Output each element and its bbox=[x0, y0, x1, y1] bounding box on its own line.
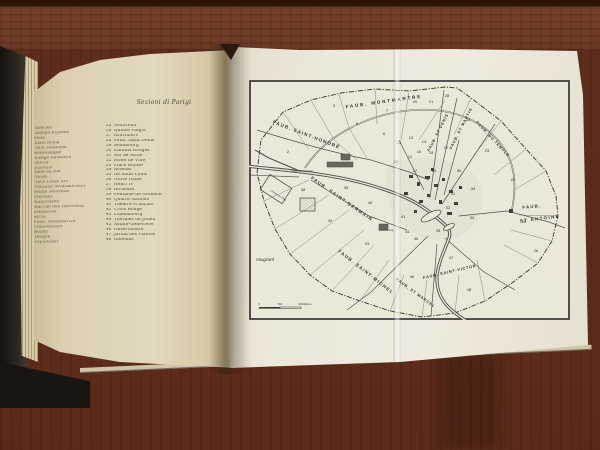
section-number: 31 bbox=[451, 191, 456, 196]
section-number: 33 bbox=[471, 186, 476, 191]
left-book-page: Sezioni di Parigi TuileriesChamps-Élysée… bbox=[28, 48, 236, 372]
section-list-1-24: TuileriesChamps-ÉlyséesRoulePalais Royal… bbox=[32, 125, 106, 245]
scale-unit-label: Metres bbox=[304, 303, 312, 306]
list-item: 48Gobelins bbox=[105, 238, 215, 243]
louvre-tuileries bbox=[327, 162, 353, 167]
section-number: 30 bbox=[457, 168, 462, 173]
book-gutter-shadow bbox=[208, 44, 252, 374]
section-number: 34 bbox=[470, 215, 475, 220]
scale-tick-label: 500 bbox=[278, 303, 283, 306]
section-number: 24 bbox=[511, 177, 516, 182]
place-label: Luxembourg bbox=[379, 228, 394, 232]
section-number: 39 bbox=[344, 185, 349, 190]
bastille bbox=[509, 209, 513, 213]
section-number: 43 bbox=[365, 241, 370, 246]
place-label: Vaugirard bbox=[256, 257, 275, 262]
section-number: 14 bbox=[422, 139, 427, 144]
section-list-25-48: 25Montreuil26Quinze Vingts27Gravilliers2… bbox=[105, 124, 215, 243]
section-number: 28 bbox=[445, 93, 450, 98]
place-label: Place de Louis XV bbox=[291, 169, 312, 173]
page-title: Sezioni di Parigi bbox=[116, 99, 212, 106]
section-number: 32 bbox=[446, 205, 451, 210]
section-number: 23 bbox=[485, 148, 490, 153]
invalides bbox=[300, 198, 315, 211]
section-number: 44 bbox=[405, 229, 410, 234]
section-number: 42 bbox=[328, 218, 333, 223]
map-plate-page: 05001000Metres FAUB. MONTMARTREFAUB. SAI… bbox=[222, 44, 592, 372]
section-number: 18 bbox=[429, 150, 434, 155]
section-number: 38 bbox=[301, 187, 306, 192]
section-number: 47 bbox=[449, 255, 454, 260]
section-number: 22 bbox=[466, 117, 471, 122]
section-number: 19 bbox=[432, 168, 437, 173]
section-number: 46 bbox=[410, 274, 415, 279]
palais-royal bbox=[341, 154, 350, 160]
section-number: 13 bbox=[409, 135, 414, 140]
map-fold-crease bbox=[393, 44, 401, 372]
section-number: 35 bbox=[436, 228, 441, 233]
wood-grain-stain bbox=[438, 356, 500, 450]
section-number: 21 bbox=[429, 99, 434, 104]
section-number: 27 bbox=[444, 145, 449, 150]
paris-sections-map: 05001000Metres FAUB. MONTMARTREFAUB. SAI… bbox=[249, 80, 570, 320]
section-number: 16 bbox=[417, 149, 422, 154]
book-photo-scene: Sezioni di Parigi TuileriesChamps-Élysée… bbox=[0, 0, 600, 450]
section-number: 40 bbox=[368, 200, 373, 205]
list-item: Popincourt bbox=[34, 239, 106, 245]
section-number: 41 bbox=[401, 214, 406, 219]
section-number: 25 bbox=[522, 219, 527, 224]
section-number: 20 bbox=[413, 99, 418, 104]
section-number: 26 bbox=[534, 248, 539, 253]
section-number: 48 bbox=[467, 287, 472, 292]
section-number: 45 bbox=[414, 236, 419, 241]
section-number: 17 bbox=[413, 168, 418, 173]
